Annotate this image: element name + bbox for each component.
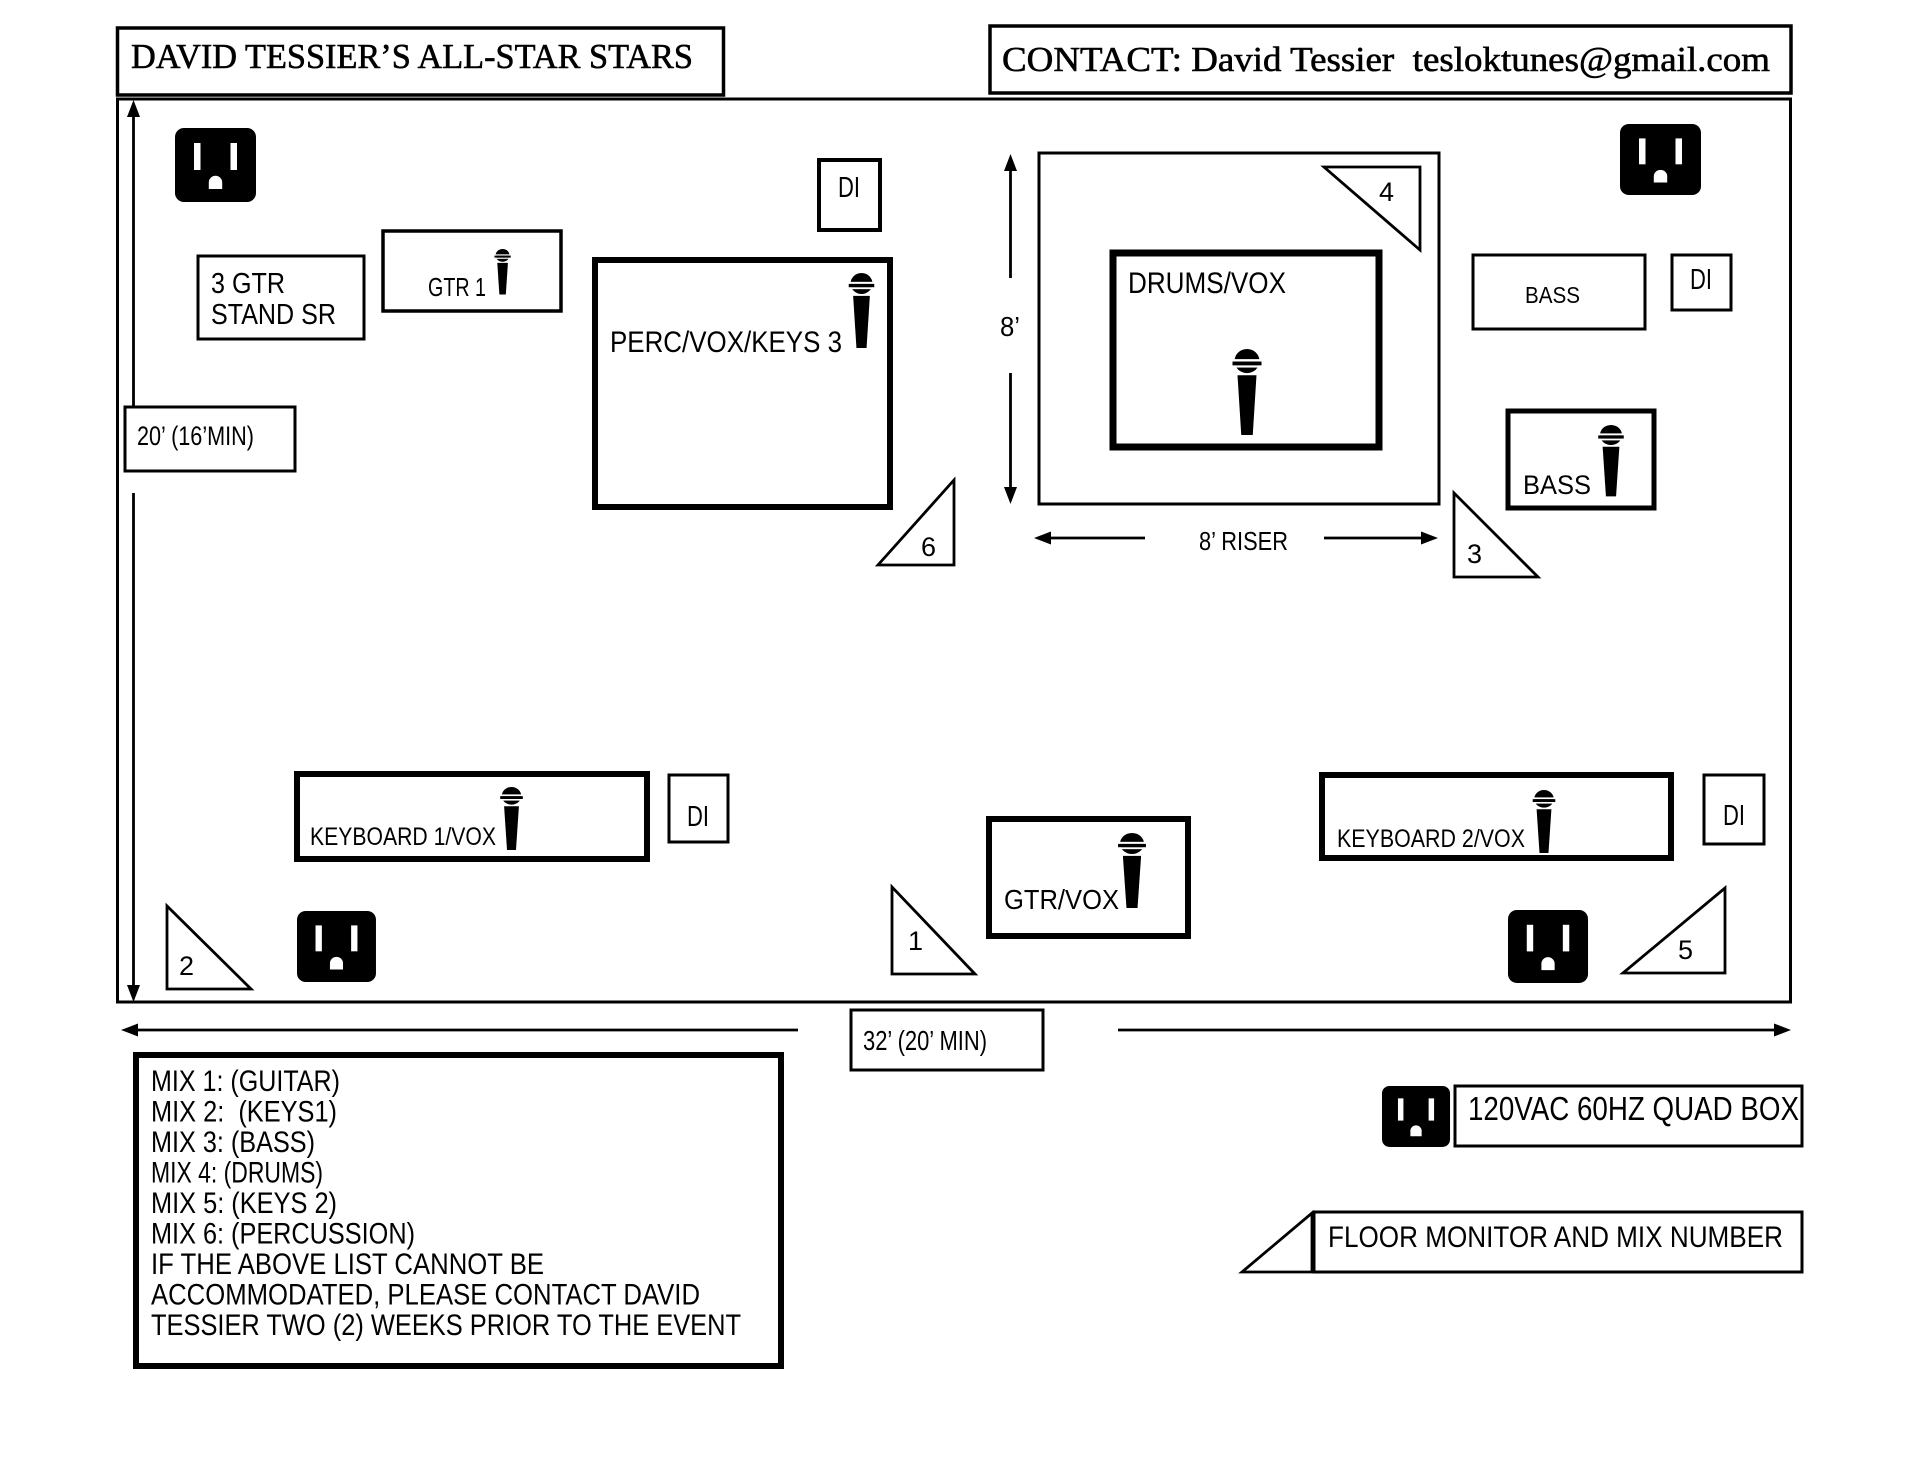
svg-text:120VAC 60HZ QUAD BOX: 120VAC 60HZ QUAD BOX [1468, 1090, 1799, 1127]
svg-text:BASS: BASS [1525, 282, 1580, 308]
svg-text:DI: DI [1723, 800, 1745, 832]
svg-text:DAVID TESSIER’S ALL-STAR STARS: DAVID TESSIER’S ALL-STAR STARS [131, 37, 693, 76]
svg-text:6: 6 [921, 532, 936, 562]
svg-text:GTR/VOX: GTR/VOX [1004, 884, 1119, 915]
svg-text:DI: DI [838, 172, 860, 204]
svg-text:MIX 4: (DRUMS): MIX 4: (DRUMS) [151, 1157, 323, 1190]
svg-text:MIX 3: (BASS): MIX 3: (BASS) [151, 1126, 315, 1159]
svg-text:STAND SR: STAND SR [211, 299, 336, 331]
svg-text:8’ RISER: 8’ RISER [1199, 526, 1288, 556]
svg-text:3: 3 [1467, 539, 1482, 569]
svg-text:4: 4 [1379, 177, 1394, 207]
svg-text:MIX 6: (PERCUSSION): MIX 6: (PERCUSSION) [151, 1218, 415, 1251]
svg-text:20’ (16’MIN): 20’ (16’MIN) [137, 421, 254, 451]
svg-text:ACCOMMODATED, PLEASE CONTACT D: ACCOMMODATED, PLEASE CONTACT DAVID [151, 1279, 700, 1312]
svg-text:TESSIER TWO (2) WEEKS PRIOR TO: TESSIER TWO (2) WEEKS PRIOR TO THE EVENT [151, 1309, 741, 1342]
svg-text:8’: 8’ [1000, 311, 1020, 342]
svg-text:DI: DI [1690, 264, 1712, 296]
svg-text:1: 1 [908, 926, 923, 956]
svg-text:32’ (20’ MIN): 32’ (20’ MIN) [863, 1025, 987, 1056]
svg-text:DI: DI [687, 801, 709, 833]
svg-text:BASS: BASS [1523, 470, 1591, 500]
svg-text:FLOOR MONITOR AND MIX NUMBER: FLOOR MONITOR AND MIX NUMBER [1328, 1221, 1783, 1254]
svg-text:CONTACT: David Tessier teslok: CONTACT: David Tessier tesloktunes@gmail… [1002, 40, 1770, 79]
svg-text:3 GTR: 3 GTR [211, 268, 285, 300]
svg-text:KEYBOARD 2/VOX: KEYBOARD 2/VOX [1337, 825, 1525, 853]
svg-text:MIX 5: (KEYS 2): MIX 5: (KEYS 2) [151, 1187, 337, 1220]
svg-text:2: 2 [179, 951, 194, 981]
svg-text:GTR 1: GTR 1 [428, 272, 486, 302]
svg-text:DRUMS/VOX: DRUMS/VOX [1128, 267, 1286, 300]
svg-text:IF THE ABOVE LIST CANNOT BE: IF THE ABOVE LIST CANNOT BE [151, 1248, 544, 1281]
svg-text:PERC/VOX/KEYS 3: PERC/VOX/KEYS 3 [610, 326, 842, 359]
svg-text:5: 5 [1678, 935, 1693, 965]
svg-text:KEYBOARD 1/VOX: KEYBOARD 1/VOX [310, 823, 496, 851]
svg-text:MIX 2: (KEYS1): MIX 2: (KEYS1) [151, 1096, 337, 1129]
svg-text:MIX 1: (GUITAR): MIX 1: (GUITAR) [151, 1065, 340, 1098]
